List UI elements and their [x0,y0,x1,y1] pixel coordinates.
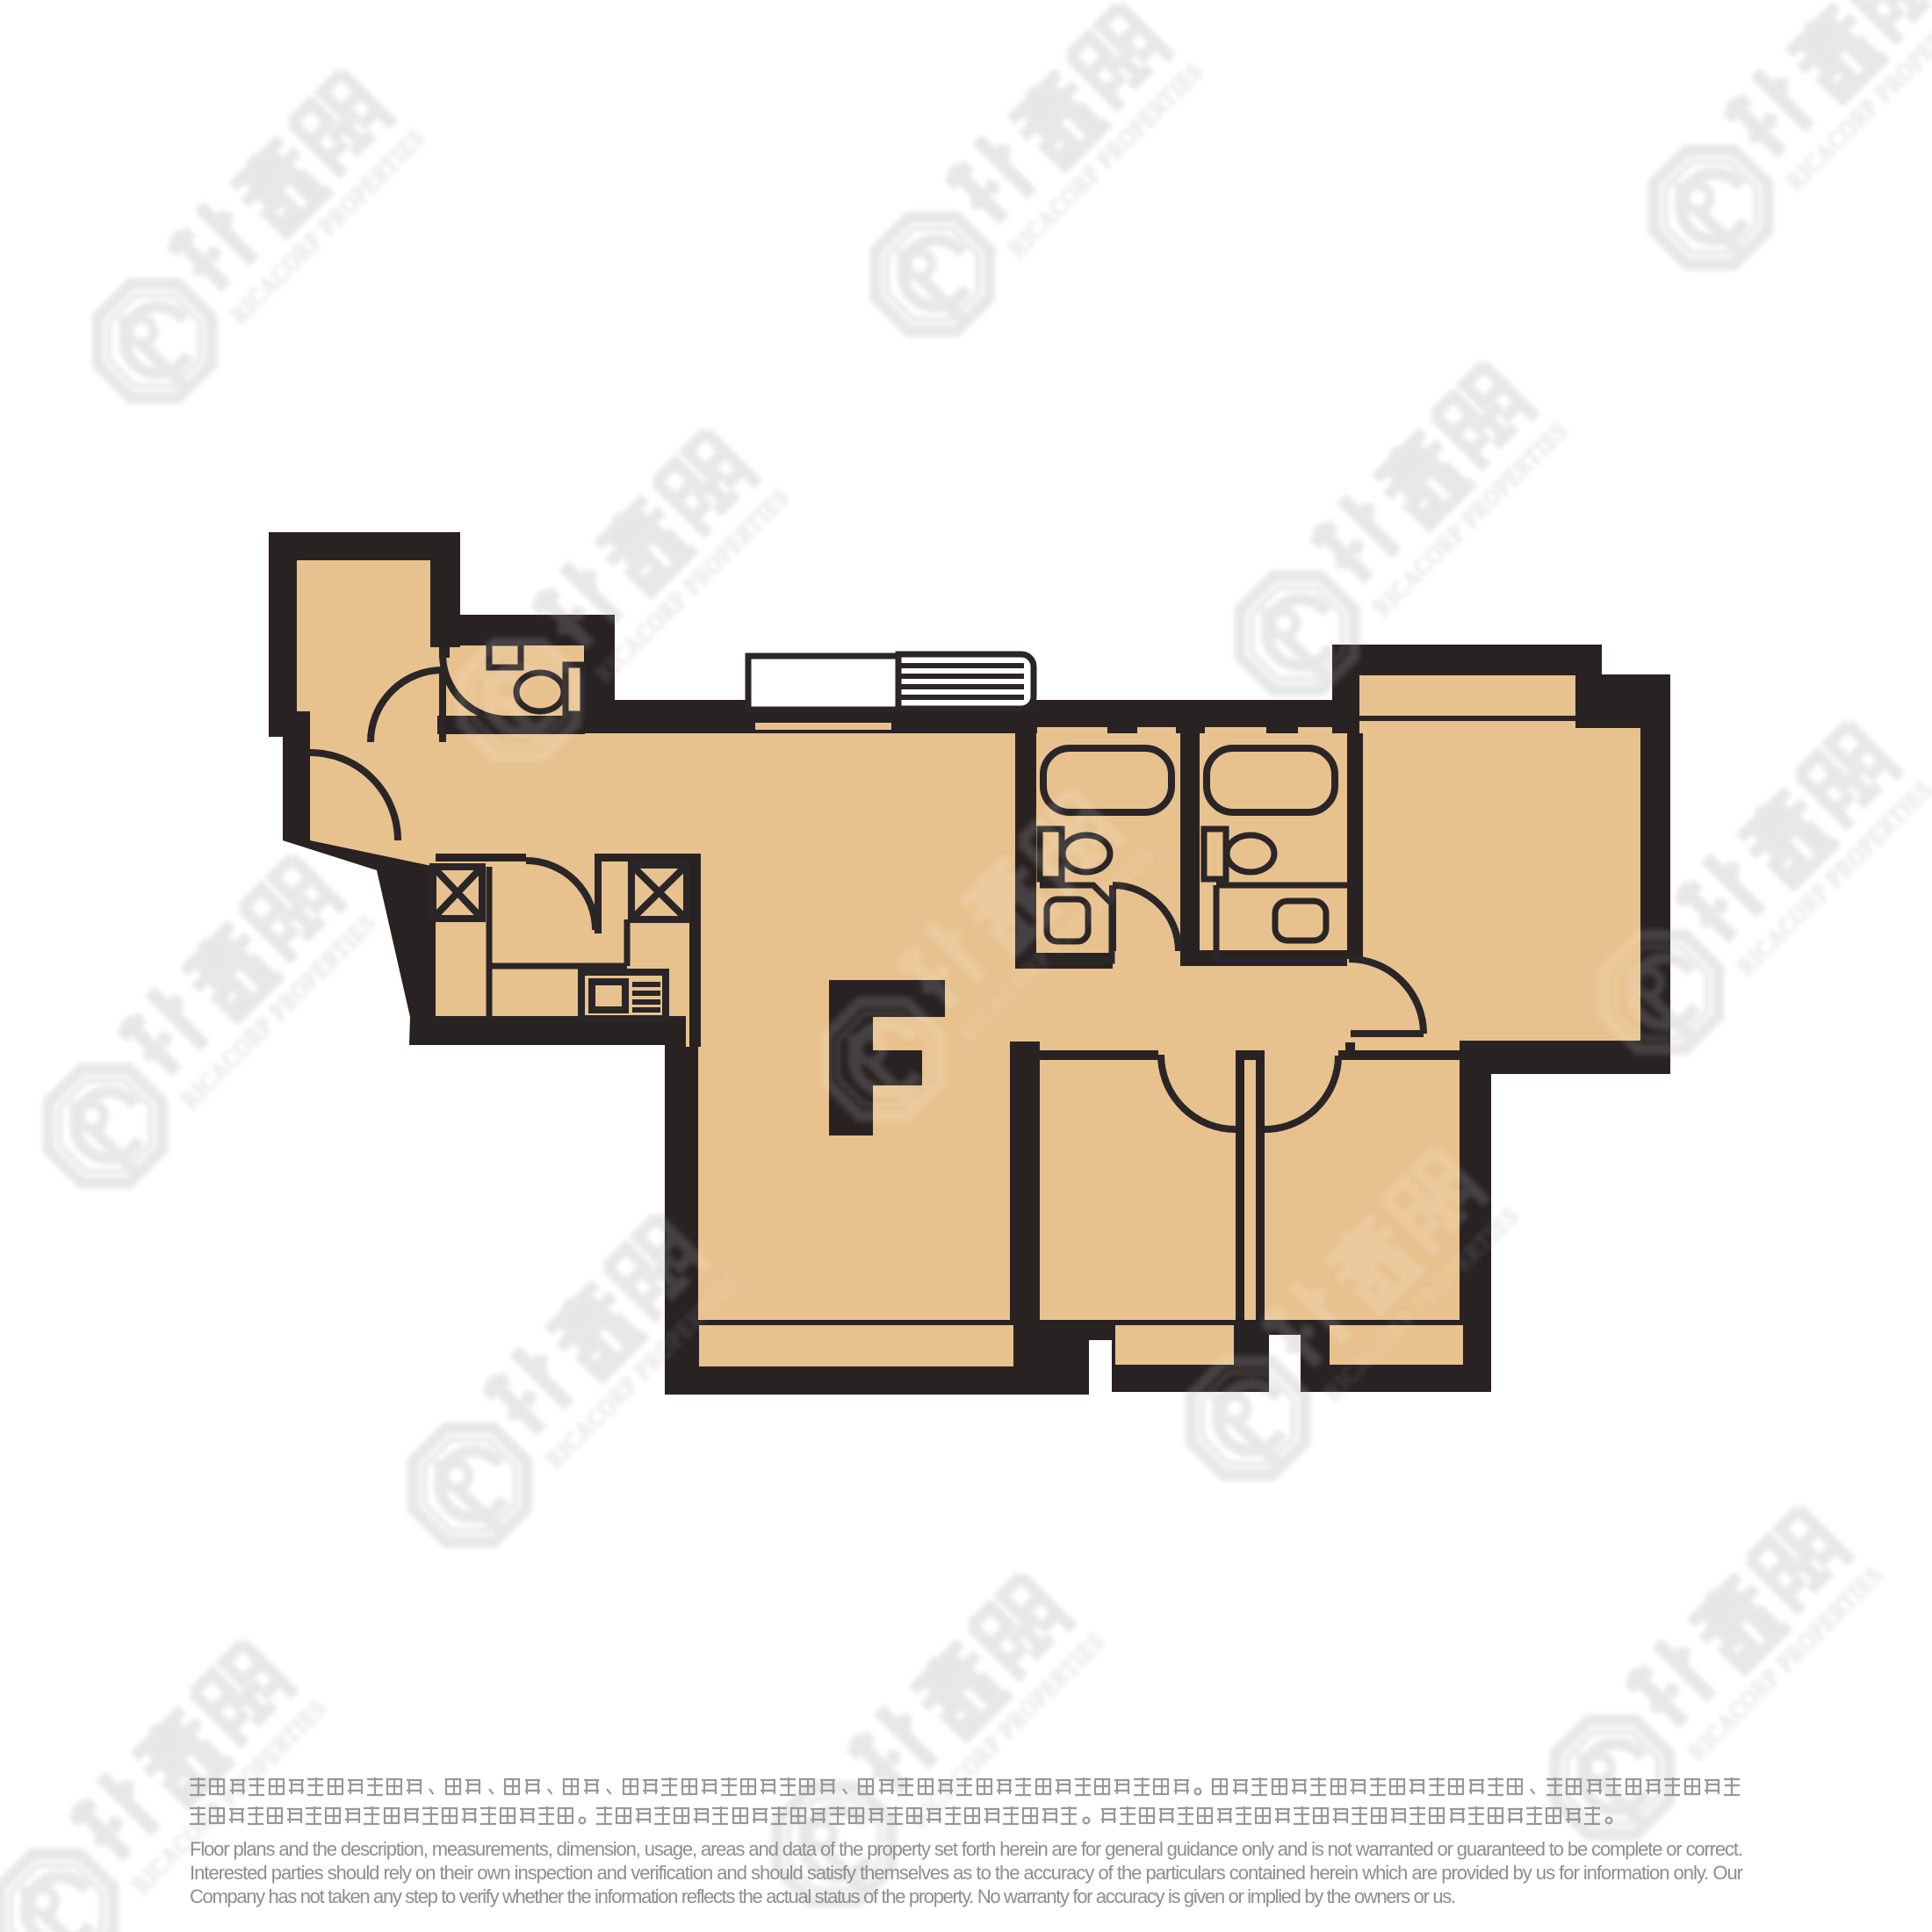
svg-text:Interested parties should rely: Interested parties should rely on their … [190,1862,1743,1884]
svg-text:Floor plans and the descriptio: Floor plans and the description, measure… [190,1838,1743,1860]
svg-text:Company has not taken any step: Company has not taken any step to verify… [190,1885,1456,1907]
